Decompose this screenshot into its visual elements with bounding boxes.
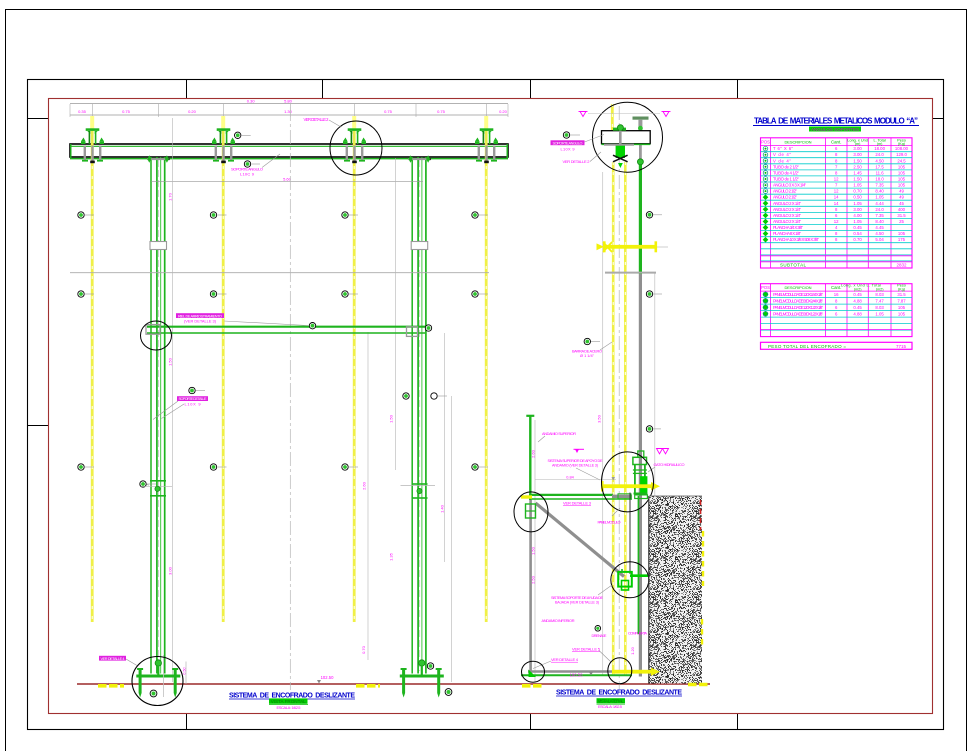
svg-text:4.88: 4.88 [853, 311, 862, 316]
svg-text:0.45: 0.45 [853, 225, 862, 230]
svg-text:PANEL MODULO A DE 0.60 X 2.44: PANEL MODULO A DE 0.60 X 2.44 X 1/8" [773, 298, 823, 303]
svg-text:(VER DETALLE 3): (VER DETALLE 3) [184, 318, 217, 323]
svg-text:ANGULO 2 X 1/4": ANGULO 2 X 1/4" [773, 213, 801, 218]
svg-text:7715: 7715 [896, 344, 907, 349]
svg-text:3.00: 3.00 [168, 566, 173, 575]
svg-text:108.00: 108.00 [895, 146, 909, 151]
svg-text:COMPUERTA: COMPUERTA [628, 631, 647, 636]
svg-text:POS: POS [761, 285, 770, 290]
svg-text:ANDAMIO INFERIOR: ANDAMIO INFERIOR [542, 618, 575, 623]
svg-text:8.40: 8.40 [875, 219, 884, 224]
svg-text:SOPORTE DETALLE: SOPORTE DETALLE [179, 397, 207, 401]
svg-text:0.45: 0.45 [853, 305, 862, 310]
svg-text:Cant.: Cant. [831, 139, 842, 144]
svg-text:SOPORTE ANGULO: SOPORTE ANGULO [553, 141, 583, 145]
svg-text:14: 14 [834, 201, 839, 206]
svg-text:0.70: 0.70 [853, 237, 862, 242]
svg-text:4.45: 4.45 [875, 225, 884, 230]
svg-text:PLANCHA 10 X 3/8 X 508 X 3/8": PLANCHA 10 X 3/8 X 508 X 3/8" [773, 237, 819, 242]
svg-text:0.50: 0.50 [853, 195, 862, 200]
svg-text:3.00: 3.00 [853, 146, 862, 151]
svg-text:0.30: 0.30 [247, 99, 256, 104]
svg-text:PANEL MODULO A DE 0.60 X 1.22: PANEL MODULO A DE 0.60 X 1.22 X 1/8" [773, 311, 823, 316]
svg-text:DESCRIPCION: DESCRIPCION [785, 139, 812, 144]
svg-text:175: 175 [898, 237, 906, 242]
svg-text:7.87: 7.87 [897, 298, 906, 303]
svg-text:DRENAJE: DRENAJE [592, 633, 607, 638]
svg-text:PANEL MODULO: PANEL MODULO [598, 520, 621, 525]
svg-text:105: 105 [898, 311, 906, 316]
svg-text:0.75: 0.75 [437, 109, 446, 114]
svg-text:ESCALA: 1/62.5: ESCALA: 1/62.5 [277, 705, 302, 710]
svg-text:VISTA FRONTAL: VISTA FRONTAL [271, 699, 306, 704]
svg-text:0.20: 0.20 [499, 109, 508, 114]
svg-text:PANEL MODULO A DE 1.20 X 2.44: PANEL MODULO A DE 1.20 X 2.44 X 1/8" [773, 292, 823, 297]
svg-text:1.40: 1.40 [440, 504, 445, 513]
svg-text:24.0: 24.0 [875, 152, 884, 157]
svg-text:TUBO de 1 1/2": TUBO de 1 1/2" [773, 177, 799, 182]
svg-text:ESCALA: 1/62.5: ESCALA: 1/62.5 [598, 704, 623, 709]
svg-text:25: 25 [899, 219, 904, 224]
svg-text:V de 4": V de 4" [773, 152, 791, 157]
svg-text:0.45: 0.45 [853, 292, 862, 297]
svg-text:12: 12 [834, 219, 839, 224]
svg-text:49: 49 [899, 189, 904, 194]
svg-text:7.35: 7.35 [875, 213, 884, 218]
svg-text:1.50: 1.50 [853, 158, 862, 163]
svg-text:8.03: 8.03 [875, 305, 884, 310]
svg-text:0.35: 0.35 [78, 109, 87, 114]
svg-text:2.50: 2.50 [853, 164, 862, 169]
svg-text:1.50: 1.50 [531, 546, 536, 555]
svg-text:1.45: 1.45 [853, 170, 862, 175]
svg-text:31.5: 31.5 [897, 213, 906, 218]
svg-text:PLANCHA 8 X 1/8": PLANCHA 8 X 1/8" [773, 231, 801, 236]
svg-text:1.50: 1.50 [853, 177, 862, 182]
svg-text:102.50: 102.50 [321, 675, 334, 680]
svg-text:ANGULOS SOPORTES: ANGULOS SOPORTES [811, 127, 859, 132]
svg-text:4.50: 4.50 [875, 158, 884, 163]
svg-text:1.50: 1.50 [389, 414, 394, 423]
svg-text:0.75: 0.75 [384, 109, 393, 114]
svg-text:L10C 9: L10C 9 [240, 171, 255, 176]
svg-text:(Kg): (Kg) [898, 287, 906, 291]
svg-text:3.50: 3.50 [596, 414, 601, 423]
svg-text:45: 45 [899, 201, 904, 206]
svg-text:3.00: 3.00 [853, 152, 862, 157]
svg-text:1.05: 1.05 [853, 183, 862, 188]
svg-text:31.5: 31.5 [897, 292, 906, 297]
svg-text:1.70: 1.70 [168, 192, 173, 201]
svg-text:0.20: 0.20 [188, 109, 197, 114]
svg-text:0.50: 0.50 [183, 667, 187, 674]
svg-text:ANGULO 2 1/2": ANGULO 2 1/2" [773, 195, 797, 200]
svg-text:PESO TOTAL DEL ENCOFRADO =: PESO TOTAL DEL ENCOFRADO = [768, 344, 846, 349]
svg-text:105: 105 [898, 164, 906, 169]
svg-text:0.70: 0.70 [361, 645, 366, 654]
svg-text:105: 105 [898, 177, 906, 182]
svg-text:24.0: 24.0 [875, 207, 884, 212]
svg-text:1.05: 1.05 [853, 201, 862, 206]
svg-text:ANDAMIO SUPERIOR: ANDAMIO SUPERIOR [542, 431, 576, 436]
svg-text:1.30: 1.30 [284, 109, 293, 114]
svg-text:5.04: 5.04 [875, 237, 884, 242]
svg-text:DESCRIPCION: DESCRIPCION [785, 285, 812, 290]
svg-text:2.60: 2.60 [531, 449, 536, 458]
svg-text:129.0: 129.0 [896, 152, 907, 157]
svg-text:1.20: 1.20 [630, 646, 635, 654]
svg-text:TABLA DE MATERIALES METALIC: TABLA DE MATERIALES METALICOS MODULO “A” [754, 117, 918, 126]
svg-text:Cant.: Cant. [831, 285, 842, 290]
svg-text:ANGULO 2 X 1/4": ANGULO 2 X 1/4" [773, 219, 801, 224]
svg-text:TUBO de 4 1/2": TUBO de 4 1/2" [773, 170, 799, 175]
svg-text:VER DETALLE 2: VER DETALLE 2 [563, 159, 591, 164]
svg-text:24.5: 24.5 [897, 158, 906, 163]
svg-text:ANGULO 3 X 3 X 1/4": ANGULO 3 X 3 X 1/4" [773, 183, 806, 188]
svg-text:SUBTOTAL: SUBTOTAL [780, 262, 806, 267]
svg-text:105: 105 [898, 170, 906, 175]
svg-text:(m2): (m2) [854, 287, 863, 291]
svg-text:1.05: 1.05 [875, 195, 884, 200]
svg-text:5.80: 5.80 [284, 99, 293, 104]
svg-text:PLANCHA 3/4 X 3/8": PLANCHA 3/4 X 3/8" [773, 225, 803, 230]
svg-text:105: 105 [898, 305, 906, 310]
svg-text:1.05: 1.05 [875, 311, 884, 316]
svg-text:VER DETALLE 5: VER DETALLE 5 [572, 646, 601, 651]
svg-text:VER DETALLE 2: VER DETALLE 2 [304, 117, 330, 122]
svg-text:16: 16 [834, 292, 839, 297]
svg-text:100.50: 100.50 [570, 673, 583, 678]
svg-text:Ø 1 1/4": Ø 1 1/4" [580, 353, 595, 358]
svg-text:L10X 9: L10X 9 [561, 147, 575, 152]
svg-text:VER DETALLE 4: VER DETALLE 4 [101, 657, 125, 661]
svg-text:L10X 9: L10X 9 [185, 402, 201, 407]
svg-text:SISTEMA DE ENCOFRADO DESLIZ: SISTEMA DE ENCOFRADO DESLIZANTE [556, 690, 682, 697]
svg-text:12: 12 [834, 177, 839, 182]
svg-text:7.47: 7.47 [875, 298, 884, 303]
svg-text:ANDAMIO (VER DETALLE 3): ANDAMIO (VER DETALLE 3) [552, 463, 599, 467]
svg-text:4.00: 4.00 [853, 213, 862, 218]
svg-text:8.40: 8.40 [875, 189, 884, 194]
svg-text:2832: 2832 [896, 262, 907, 267]
svg-text:1.50: 1.50 [168, 357, 173, 366]
svg-text:2.60: 2.60 [362, 481, 367, 490]
svg-text:GATO HIDRAULICO: GATO HIDRAULICO [654, 462, 685, 467]
svg-text:14: 14 [834, 195, 839, 200]
svg-text:105: 105 [898, 183, 906, 188]
svg-text:4.50: 4.50 [875, 231, 884, 236]
svg-text:1.05: 1.05 [853, 219, 862, 224]
svg-text:17.5: 17.5 [875, 164, 884, 169]
svg-text:BAJADA (VER DETALLE 3): BAJADA (VER DETALLE 3) [555, 600, 600, 604]
svg-text:0.84: 0.84 [566, 475, 574, 480]
svg-text:POS: POS [761, 139, 770, 144]
svg-text:SISTEMA SOPORTE DE AYUDA DE: SISTEMA SOPORTE DE AYUDA DE [551, 596, 603, 600]
svg-text:49: 49 [899, 195, 904, 200]
svg-text:105: 105 [898, 231, 906, 236]
svg-text:0.70: 0.70 [853, 189, 862, 194]
svg-text:TUBO de 2 1/2": TUBO de 2 1/2" [773, 164, 799, 169]
svg-text:ANGULO 2 X 1/4": ANGULO 2 X 1/4" [773, 207, 801, 212]
svg-text:18.00: 18.00 [874, 146, 885, 151]
svg-text:3.00: 3.00 [853, 207, 862, 212]
svg-text:ANGULO 2 X 1/4": ANGULO 2 X 1/4" [773, 201, 801, 206]
svg-text:4.88: 4.88 [853, 298, 862, 303]
svg-text:0.75: 0.75 [122, 109, 131, 114]
svg-text:1.35: 1.35 [389, 552, 394, 561]
svg-text:(m2): (m2) [876, 287, 885, 291]
svg-text:18.0: 18.0 [875, 177, 884, 182]
svg-text:VER DETALLE 3: VER DETALLE 3 [563, 501, 592, 506]
svg-text:8.03: 8.03 [875, 292, 884, 297]
svg-text:V de 4": V de 4" [773, 158, 791, 163]
svg-text:PANEL MODULO A DE 1.20 X 1.22: PANEL MODULO A DE 1.20 X 1.22 X 1/8" [773, 305, 823, 310]
svg-text:SISTEMA SUPERIOR DE APOYO DE: SISTEMA SUPERIOR DE APOYO DE [548, 459, 603, 463]
svg-text:4.44: 4.44 [875, 201, 884, 206]
svg-text:ANGULO 2 1/2": ANGULO 2 1/2" [773, 189, 797, 194]
svg-text:VER DETALLE 4: VER DETALLE 4 [551, 657, 579, 662]
svg-text:2.50: 2.50 [531, 575, 536, 584]
svg-text:12: 12 [834, 189, 839, 194]
svg-text:11.6: 11.6 [876, 170, 885, 175]
svg-text:T 6" X 6": T 6" X 6" [773, 146, 793, 151]
svg-text:400: 400 [898, 207, 906, 212]
svg-text:0.54: 0.54 [853, 231, 862, 236]
svg-text:7.35: 7.35 [875, 183, 884, 188]
